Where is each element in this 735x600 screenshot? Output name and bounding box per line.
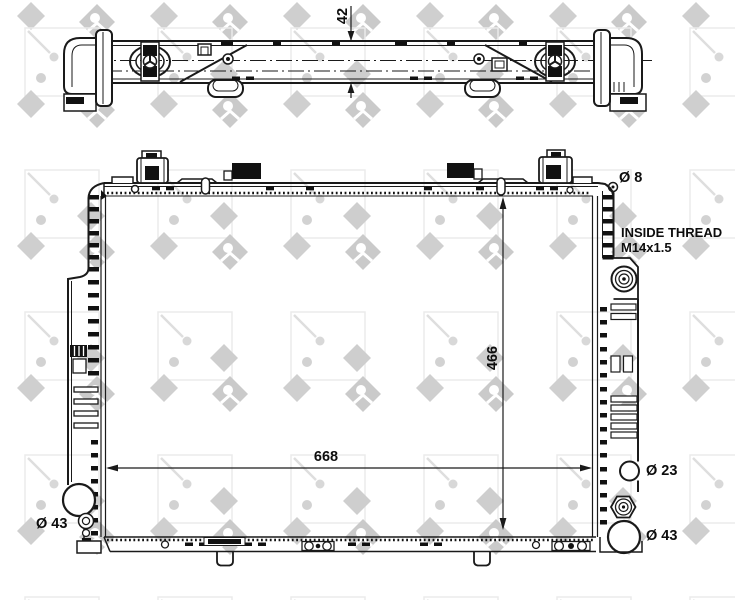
clamp-block-right [447, 163, 474, 178]
mount-tab-left [217, 552, 233, 566]
dia-8-label: Ø 8 [619, 170, 642, 186]
outlet-port-left-43 [63, 484, 95, 516]
left-tank [63, 183, 104, 553]
dim-depth-label: 42 [335, 1, 351, 31]
dia-43-right-label: Ø 43 [646, 528, 677, 544]
thread-note: INSIDE THREAD M14x1.5 [621, 225, 722, 255]
drawing-layer [0, 0, 735, 600]
dim-width-label: 668 [304, 449, 348, 465]
bottom-header [104, 537, 596, 566]
outlet-port-right-43 [608, 521, 640, 553]
dim-height-label: 466 [485, 338, 501, 378]
top-header [101, 150, 618, 200]
front-view [63, 150, 642, 566]
radiator-technical-drawing: 42 466 668 Ø 8 INSIDE THREAD M14x1.5 Ø 2… [0, 0, 735, 600]
dia-23-label: Ø 23 [646, 463, 677, 479]
top-view [64, 30, 652, 111]
thread-note-line1: INSIDE THREAD [621, 225, 722, 240]
port-23 [620, 462, 639, 481]
mount-bracket-left [137, 151, 168, 183]
clamp-block-left [232, 163, 261, 179]
mount-tab-right [474, 552, 490, 566]
mount-bracket-right [539, 150, 572, 183]
left-hose-elbow [64, 38, 96, 94]
thread-note-line2: M14x1.5 [621, 240, 722, 255]
dia-43-left-label: Ø 43 [36, 516, 67, 532]
right-hose-elbow [610, 38, 642, 94]
dim-width-668 [106, 465, 592, 472]
left-filler-cap [130, 42, 170, 81]
